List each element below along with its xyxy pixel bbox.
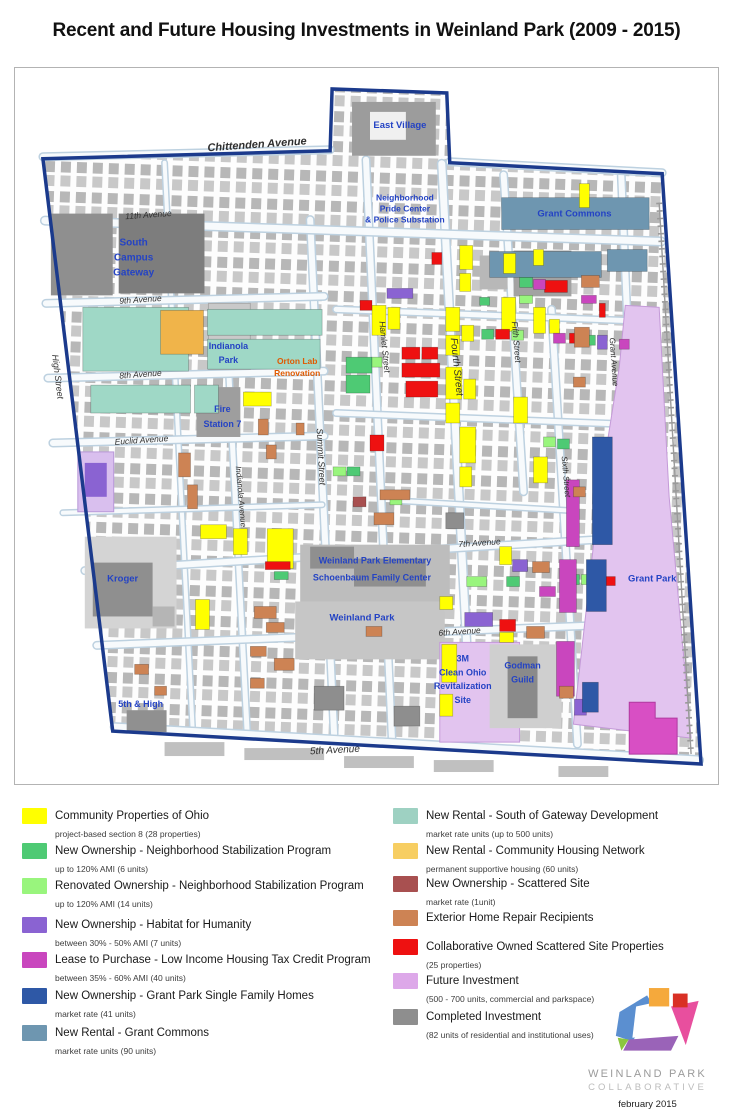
parcel-yellow	[440, 597, 453, 610]
street-label-5th-ave: 5th Avenue	[310, 744, 361, 758]
parcel-green	[520, 277, 533, 287]
parcel-red	[406, 381, 438, 397]
place-label-orton-2: Renovation	[274, 368, 320, 378]
organization-name: WEINLAND PARK COLLABORATIVE	[575, 1068, 720, 1093]
legend-label: New Ownership - Neighborhood Stabilizati…	[55, 845, 331, 857]
legend-label: New Ownership - Habitat for Humanity	[55, 919, 251, 931]
parcel-repair_orange	[527, 626, 545, 638]
parcel-repair_orange	[559, 686, 573, 698]
legend-swatch	[22, 808, 47, 824]
legend-swatch	[393, 1009, 418, 1025]
parcel-green	[557, 439, 569, 449]
parcel-yellow	[440, 694, 453, 716]
parcel-repair_orange	[574, 327, 589, 347]
legend-swatch	[393, 843, 418, 859]
parcel-red	[544, 280, 567, 292]
parcel-red	[370, 435, 384, 451]
parcel-repair_orange	[533, 562, 550, 573]
place-label-orton-1: Orton Lab	[277, 356, 317, 366]
parcel-red	[599, 303, 605, 317]
fifth-and-high-building	[127, 710, 167, 732]
parcel-yellow	[500, 632, 514, 642]
parcel-light_green	[543, 437, 555, 447]
parcel-yellow	[446, 403, 460, 423]
parcel-red	[402, 347, 420, 359]
parcel-repair_orange	[254, 606, 276, 618]
place-label-5th-high: 5th & High	[118, 699, 163, 709]
parcel-repair_orange	[374, 513, 394, 525]
collaborative-logo	[614, 983, 706, 1063]
parcel-green	[274, 572, 288, 580]
parcel-magenta	[619, 339, 629, 349]
parcel-yellow	[195, 600, 209, 630]
place-label-indianola-park-1: Indianola	[209, 341, 249, 351]
place-label-indianola-park-2: Park	[219, 355, 238, 365]
parcel-magenta	[581, 295, 596, 303]
place-label-wpe: Weinland Park Elementary	[319, 556, 432, 566]
parcel-teal	[207, 309, 322, 335]
legend-sublabel: (25 properties)	[426, 960, 481, 970]
parcel-yellow	[460, 427, 476, 463]
legend-swatch	[393, 876, 418, 892]
legend-sublabel: (500 - 700 units, commercial and parkspa…	[426, 994, 594, 1004]
parcel-repair_orange	[266, 622, 284, 632]
parcel-steel_blue	[607, 250, 647, 272]
parcel-yellow	[460, 246, 473, 270]
parcel-red	[402, 363, 440, 377]
parcel-chn_orange	[161, 310, 204, 354]
parcel-green	[347, 467, 360, 476]
parcel-dark_blue	[592, 437, 612, 545]
place-label-godman-1: Godman	[504, 660, 540, 670]
parcel-red	[500, 619, 516, 631]
parcel-yellow	[504, 253, 516, 273]
legend-label: Collaborative Owned Scattered Site Prope…	[426, 941, 664, 953]
legend-label: Lease to Purchase - Low Income Housing T…	[55, 954, 371, 966]
legend-swatch	[393, 808, 418, 824]
legend-label: Completed Investment	[426, 1011, 541, 1023]
place-label-3m-1: 3M	[456, 653, 468, 663]
parcel-green	[480, 297, 490, 305]
parcel-repair_orange	[179, 453, 191, 477]
parcel-repair_orange	[573, 377, 585, 387]
place-label-pride-3: & Police Substation	[365, 215, 445, 225]
place-label-fire-2: Station 7	[203, 419, 241, 429]
parcel-yellow	[534, 250, 544, 266]
parcel-maroon	[353, 497, 366, 507]
parcel-repair_orange	[380, 490, 410, 500]
parcel-light_green	[333, 467, 346, 476]
place-label-east-village: East Village	[373, 120, 426, 131]
parcel-repair_orange	[274, 658, 294, 670]
parcel-yellow	[460, 273, 471, 291]
parcel-yellow	[460, 467, 472, 487]
map-panel: Chittenden Avenue 11th Avenue 9th Avenue…	[14, 67, 719, 785]
legend-sublabel: up to 120% AMI (6 units)	[55, 864, 148, 874]
place-label-scg-2: Campus	[114, 252, 154, 263]
parcel-repair_orange	[573, 487, 585, 497]
parcel-yellow	[233, 529, 247, 555]
parcel-magenta	[559, 560, 576, 613]
parcel-green	[482, 329, 494, 339]
place-label-pride-2: Pride Center	[380, 204, 431, 214]
place-label-3m-4: Site	[454, 695, 470, 705]
place-label-grant-commons: Grant Commons	[537, 209, 611, 220]
parcel-repair_orange	[366, 626, 382, 636]
parcel-purple	[597, 335, 607, 349]
org-line-2: COLLABORATIVE	[575, 1082, 720, 1093]
parcel-yellow	[446, 307, 460, 331]
place-label-pride-1: Neighborhood	[376, 193, 434, 203]
place-label-weinland-park: Weinland Park	[329, 612, 395, 623]
legend-sublabel: between 30% - 50% AMI (7 units)	[55, 938, 181, 948]
legend-label: Community Properties of Ohio	[55, 810, 209, 822]
parcel-repair_orange	[188, 485, 198, 509]
parcel-dark_blue	[586, 560, 606, 612]
parcel-yellow	[200, 525, 226, 539]
legend-label: New Rental - Grant Commons	[55, 1027, 209, 1039]
parcel-yellow	[514, 397, 528, 423]
legend-sublabel: between 35% - 60% AMI (40 units)	[55, 973, 186, 983]
legend-label: New Ownership - Scattered Site	[426, 878, 590, 890]
legend-sublabel: permanent supportive housing (60 units)	[426, 864, 578, 874]
parcel-yellow	[549, 319, 559, 333]
legend-label: New Rental - South of Gateway Developmen…	[426, 810, 658, 822]
parcel-light_green	[520, 295, 533, 303]
parcel-red	[265, 562, 290, 570]
legend-label: Future Investment	[426, 975, 519, 987]
org-line-1: WEINLAND PARK	[575, 1068, 720, 1080]
legend-label: Exterior Home Repair Recipients	[426, 912, 593, 924]
place-label-sfc: Schoenbaum Family Center	[313, 573, 432, 583]
map-date: february 2015	[575, 1099, 720, 1110]
parcel-green	[346, 375, 370, 393]
legend-swatch	[22, 988, 47, 1004]
parcel-completed_gray	[394, 706, 420, 726]
parcel-yellow	[464, 379, 476, 399]
parcel-magenta	[553, 333, 565, 343]
legend-sublabel: market rate units (up to 500 units)	[426, 829, 553, 839]
parcel-red	[422, 347, 438, 359]
place-label-scg-1: South	[120, 238, 148, 249]
parcel-yellow	[534, 457, 548, 483]
legend-swatch	[22, 1025, 47, 1041]
legend-swatch	[393, 973, 418, 989]
legend-swatch	[393, 910, 418, 926]
parcel-repair_orange	[135, 664, 149, 674]
parcel-completed_gray	[446, 513, 464, 529]
place-label-godman-2: Guild	[511, 674, 534, 684]
parcel-yellow	[534, 307, 546, 333]
logo-red-shape	[673, 994, 688, 1008]
legend-sublabel: market rate (41 units)	[55, 1009, 136, 1019]
legend-label: New Rental - Community Housing Network	[426, 845, 645, 857]
south-campus-gateway-west	[51, 214, 113, 296]
parcel-red	[496, 329, 510, 339]
parcel-light_green	[467, 577, 487, 587]
legend-sublabel: market rate (1unit)	[426, 897, 495, 907]
parcel-yellow	[462, 325, 474, 341]
legend-sublabel: project-based section 8 (28 properties)	[55, 829, 201, 839]
legend-sublabel: market rate units (90 units)	[55, 1046, 156, 1056]
parcel-yellow	[388, 307, 400, 329]
parcel-yellow	[579, 184, 589, 208]
parcel-repair_orange	[266, 445, 276, 459]
legend-sublabel: up to 120% AMI (14 units)	[55, 899, 153, 909]
parcel-repair_orange	[250, 646, 266, 656]
place-label-grant-park: Grant Park	[628, 574, 677, 585]
parcel-yellow	[500, 547, 512, 565]
legend-swatch	[22, 917, 47, 933]
parcel-repair_orange	[155, 686, 167, 695]
page-title: Recent and Future Housing Investments in…	[0, 20, 733, 42]
place-label-kroger: Kroger	[107, 574, 138, 585]
parcel-light_green	[372, 357, 382, 367]
parcel-dark_blue	[582, 682, 598, 712]
legend-sublabel: (82 units of residential and institution…	[426, 1030, 594, 1040]
place-label-3m-3: Revitalization	[434, 681, 492, 691]
parcel-magenta	[540, 587, 556, 597]
place-label-3m-2: Clean Ohio	[439, 667, 487, 677]
legend-label: Renovated Ownership - Neighborhood Stabi…	[55, 880, 364, 892]
logo-white-shape	[632, 1001, 667, 1038]
parcel-red	[360, 300, 372, 310]
parcel-green	[346, 357, 372, 373]
parcel-purple	[513, 560, 528, 572]
place-label-scg-3: Gateway	[113, 267, 154, 278]
map: Chittenden Avenue 11th Avenue 9th Avenue…	[15, 68, 718, 784]
parcel-teal	[91, 385, 191, 413]
legend-swatch	[22, 878, 47, 894]
place-label-fire-1: Fire	[214, 404, 230, 414]
parcel-repair_orange	[581, 275, 599, 287]
parcel-green	[507, 577, 520, 587]
parcel-repair_orange	[296, 423, 304, 435]
legend-swatch	[22, 843, 47, 859]
parcel-yellow	[243, 392, 271, 406]
legend-label: New Ownership - Grant Park Single Family…	[55, 990, 314, 1002]
parcel-red	[432, 252, 442, 264]
legend-swatch	[393, 939, 418, 955]
parcel-completed_gray	[314, 686, 344, 710]
godman-guild-block	[490, 644, 562, 728]
legend-swatch	[22, 952, 47, 968]
logo-orange-shape	[649, 988, 669, 1006]
parcel-magenta	[534, 279, 546, 289]
parcel-repair_orange	[258, 419, 268, 435]
parcel-repair_orange	[250, 678, 264, 688]
parcel-purple	[387, 288, 413, 298]
